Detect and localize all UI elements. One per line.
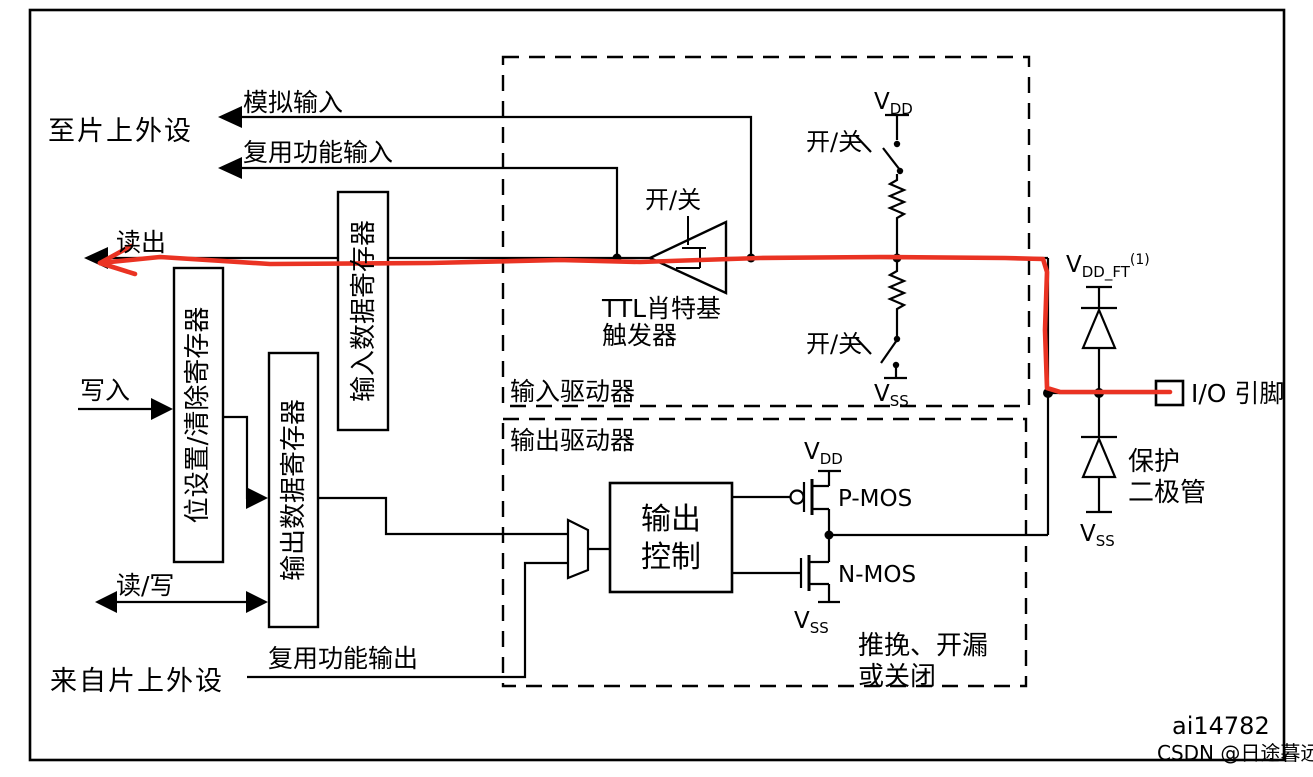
vdd-base: V [804, 439, 820, 465]
protection-diode-label-line2: 二极管 [1128, 478, 1206, 508]
to-onchip-peripherals-label: 至片上外设 [48, 116, 193, 147]
mux-symbol [568, 520, 588, 578]
bit-set-clear-register-label: 位设置/清除寄存器 [183, 307, 213, 524]
vss-sub: SS [810, 619, 829, 637]
af-input-label: 复用功能输入 [243, 138, 393, 167]
figure-id: ai14782 [1172, 712, 1270, 740]
switch-terminal-dot [894, 141, 900, 147]
watermark: CSDN @日途暮远 [1157, 741, 1313, 765]
read-label: 读出 [116, 228, 166, 257]
pulldown-onoff-label: 开/关 [806, 330, 862, 358]
schmitt-name-line2: 触发器 [602, 321, 677, 350]
output-control-line1: 输出 [641, 502, 701, 537]
output-data-register-label: 输出数据寄存器 [279, 399, 309, 581]
input-driver-label: 输入驱动器 [510, 377, 635, 406]
switch-terminal-dot [897, 168, 903, 174]
output-control-box [610, 483, 732, 592]
vddft-sup: (1) [1130, 252, 1150, 268]
vdd-sub: DD [820, 450, 843, 468]
vss-base: V [794, 608, 810, 634]
schmitt-onoff-label: 开/关 [645, 186, 701, 214]
protection-diode-label-line1: 保护 [1128, 447, 1180, 477]
switch-terminal-dot [893, 362, 899, 368]
vdd-sub: DD [890, 100, 913, 118]
gpio-structure-diagram: 至片上外设 模拟输入 复用功能输入 读出 写入 读/写 来自片上外设 复用功能输… [0, 0, 1313, 777]
vss-sub: SS [890, 392, 909, 410]
output-mode-line2: 或关闭 [858, 662, 936, 692]
diagram-svg: 至片上外设 模拟输入 复用功能输入 读出 写入 读/写 来自片上外设 复用功能输… [0, 0, 1313, 777]
write-label: 写入 [80, 376, 130, 405]
vddft-base: V [1066, 252, 1082, 278]
read-write-label: 读/写 [116, 571, 174, 600]
vdd-base: V [874, 89, 890, 115]
analog-input-label: 模拟输入 [243, 88, 343, 117]
junction-dot [825, 531, 834, 540]
pullup-onoff-label: 开/关 [806, 128, 862, 156]
output-control-line2: 控制 [641, 540, 701, 575]
vddft-sub: DD_FT [1082, 263, 1131, 282]
af-output-label: 复用功能输出 [268, 644, 418, 673]
vss-sub: SS [1096, 532, 1115, 550]
output-mode-line1: 推挽、开漏 [858, 631, 988, 661]
schmitt-name-line1: TTL肖特基 [601, 294, 721, 323]
vss-base: V [874, 381, 890, 407]
nmos-label: N-MOS [838, 562, 916, 588]
input-data-register-label: 输入数据寄存器 [349, 220, 379, 402]
switch-terminal-dot [894, 336, 900, 342]
io-pin-label: I/O 引脚 [1191, 379, 1284, 408]
pmos-label: P-MOS [838, 486, 912, 512]
vss-base: V [1080, 521, 1096, 547]
output-driver-label: 输出驱动器 [510, 426, 635, 455]
from-onchip-peripherals-label: 来自片上外设 [50, 666, 224, 697]
pmos-gate-bubble [791, 491, 804, 504]
